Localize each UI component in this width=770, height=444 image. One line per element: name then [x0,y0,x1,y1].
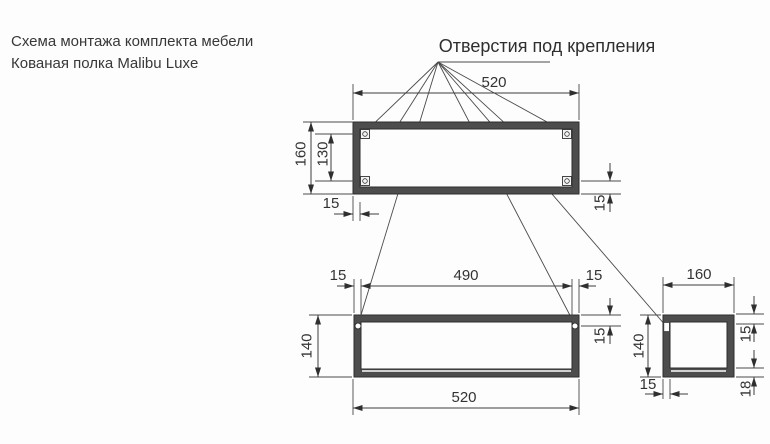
dimension-top-offset-right: 15 [581,163,621,212]
dimension-front-width: 520 [353,379,579,415]
dim-label: 520 [481,74,506,91]
dimension-front-hole-span: 490 [361,267,572,320]
dimension-front-hole-offset: 15 [581,298,621,344]
dim-label: 160 [292,141,309,166]
assembly-drawing: Отверстия под крепления [0,0,770,444]
dim-label: 15 [330,267,347,284]
dimension-side-wall-bottom: 18 [736,350,764,397]
dim-label: 520 [451,389,476,406]
front-view-cavity [361,322,572,369]
top-view-cavity [360,129,572,187]
dim-label: 15 [323,195,340,212]
dim-label: 15 [586,267,603,284]
dim-label: 160 [686,266,711,283]
mounting-hole [361,130,370,139]
dimension-top-width: 520 [353,74,579,120]
diagram-canvas: Схема монтажа комплекта мебели Кованая п… [0,0,770,444]
dim-label: 490 [453,267,478,284]
dim-label: 15 [591,328,608,345]
dimension-top-hole-span: 130 [314,134,358,181]
dimension-side-width: 160 [663,266,734,313]
dim-label: 15 [640,376,657,393]
side-view-cavity [670,322,727,368]
mounting-hole [355,323,361,329]
top-view: 520 160 130 15 [292,74,621,221]
dimension-front-height: 140 [298,315,352,377]
dimension-front-offset-right: 15 [579,267,602,313]
dim-label: 18 [737,381,754,398]
mounting-hole [664,323,670,332]
front-view: 15 490 15 140 [298,267,621,415]
dimension-top-offset-left: 15 [323,195,379,221]
dimension-side-wall-top: 15 [736,296,764,342]
dim-label: 140 [298,333,315,358]
dim-label: 140 [630,333,647,358]
side-view: 160 140 15 18 [630,266,764,399]
dim-label: 15 [591,195,608,212]
dimension-front-offset-left: 15 [330,267,361,320]
dimension-side-wall-left: 15 [640,376,688,399]
mounting-hole [572,323,578,329]
dimension-side-height: 140 [630,315,661,377]
dim-label: 130 [314,141,331,166]
mounting-hole [361,177,370,186]
mounting-hole [563,177,572,186]
dim-label: 15 [737,326,754,343]
callout-label: Отверстия под крепления [439,36,655,56]
mounting-hole [563,130,572,139]
